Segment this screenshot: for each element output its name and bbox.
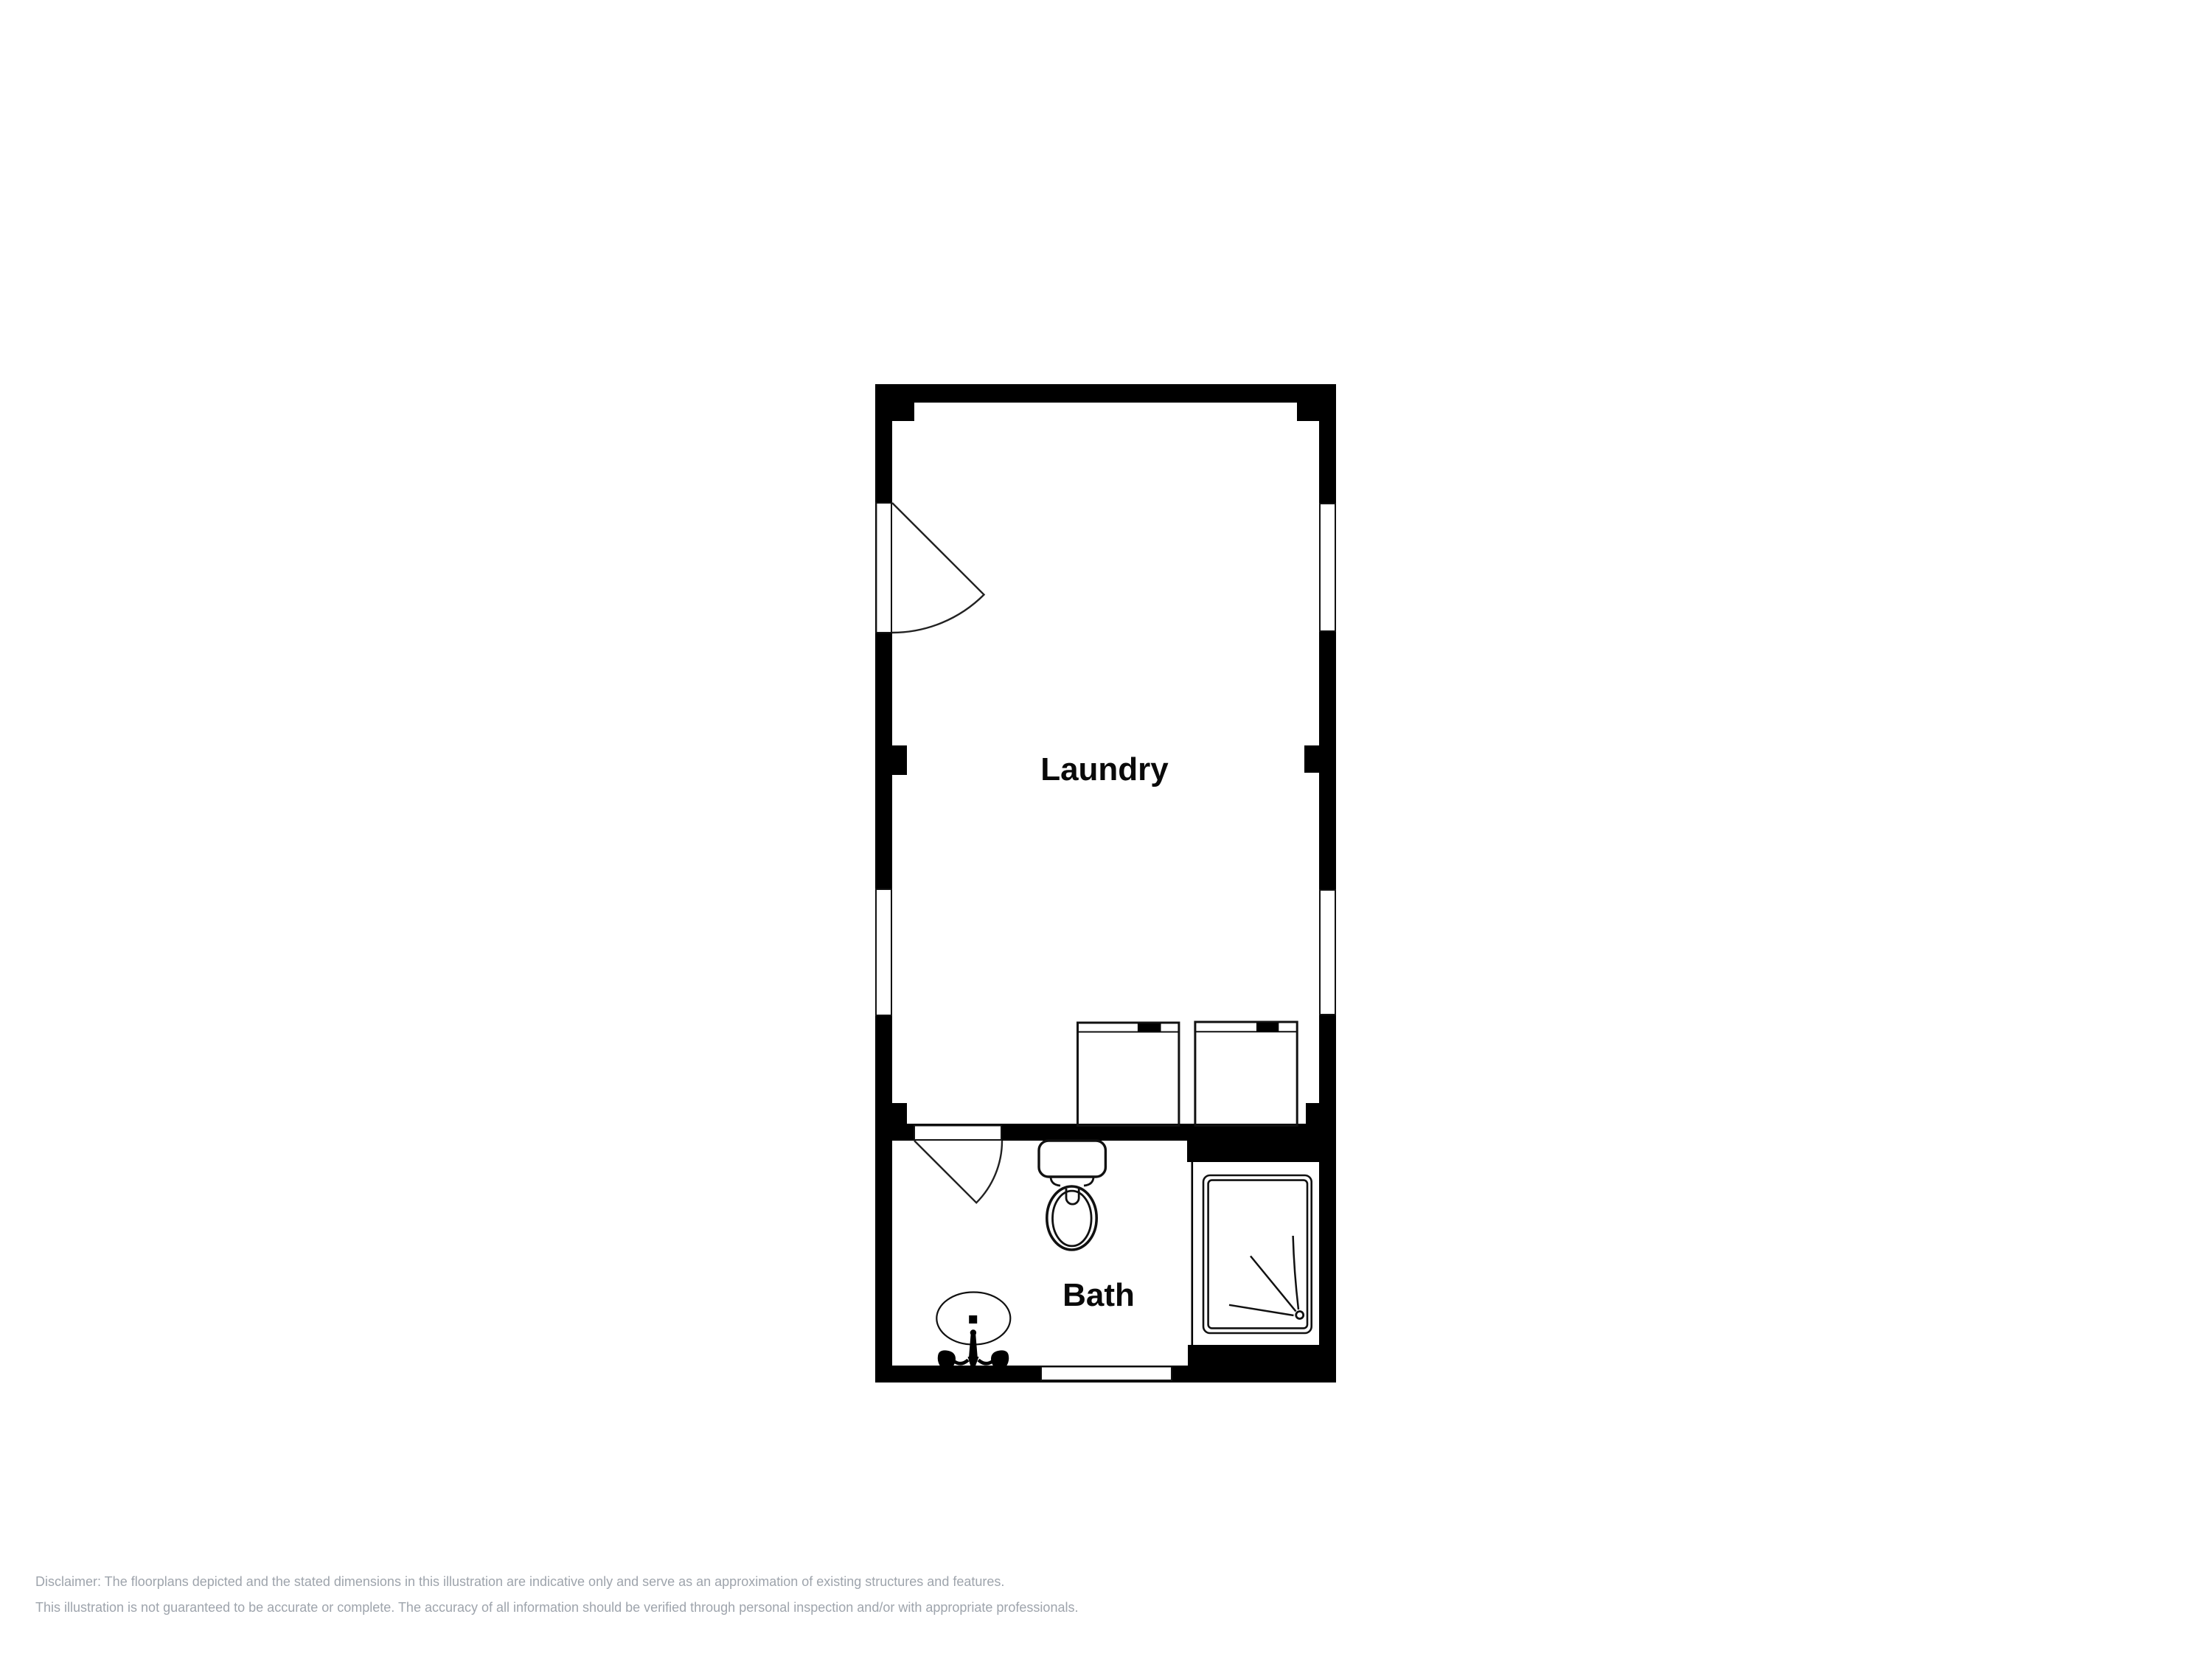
svg-text:Bath: Bath (1062, 1277, 1135, 1313)
svg-text:Disclaimer: The floorplans dep: Disclaimer: The floorplans depicted and … (35, 1574, 1004, 1589)
svg-text:Laundry: Laundry (1040, 751, 1169, 787)
svg-text:This illustration is not guara: This illustration is not guaranteed to b… (35, 1600, 1078, 1615)
